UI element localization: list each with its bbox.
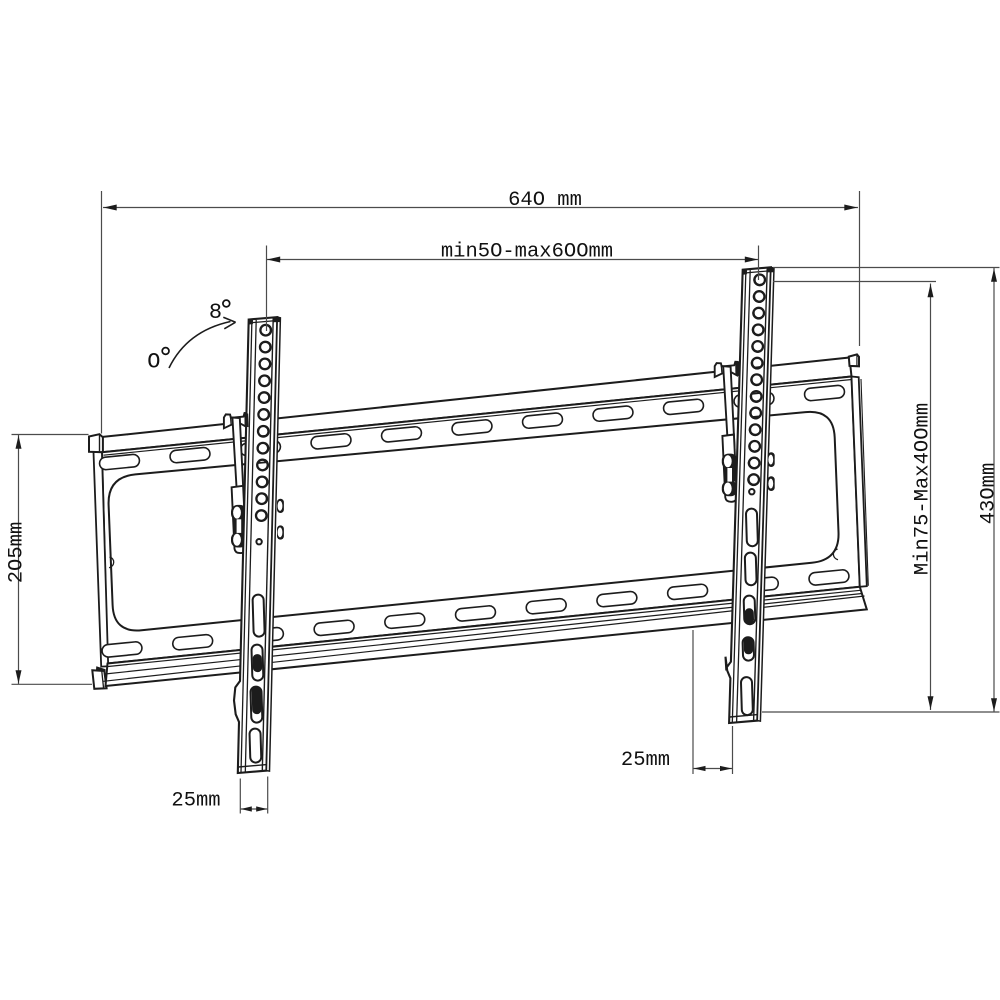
svg-text:Min75-Max4OOmm: Min75-Max4OOmm	[912, 403, 935, 575]
svg-text:8: 8	[209, 300, 222, 325]
svg-text:64O mm: 64O mm	[508, 189, 582, 212]
svg-text:25mm: 25mm	[621, 749, 670, 772]
svg-text:O: O	[147, 350, 160, 375]
svg-text:2O5mm: 2O5mm	[6, 522, 29, 584]
svg-text:min5O-max6OOmm: min5O-max6OOmm	[441, 241, 613, 264]
svg-text:25mm: 25mm	[171, 790, 220, 813]
svg-text:43Omm: 43Omm	[978, 463, 1000, 525]
